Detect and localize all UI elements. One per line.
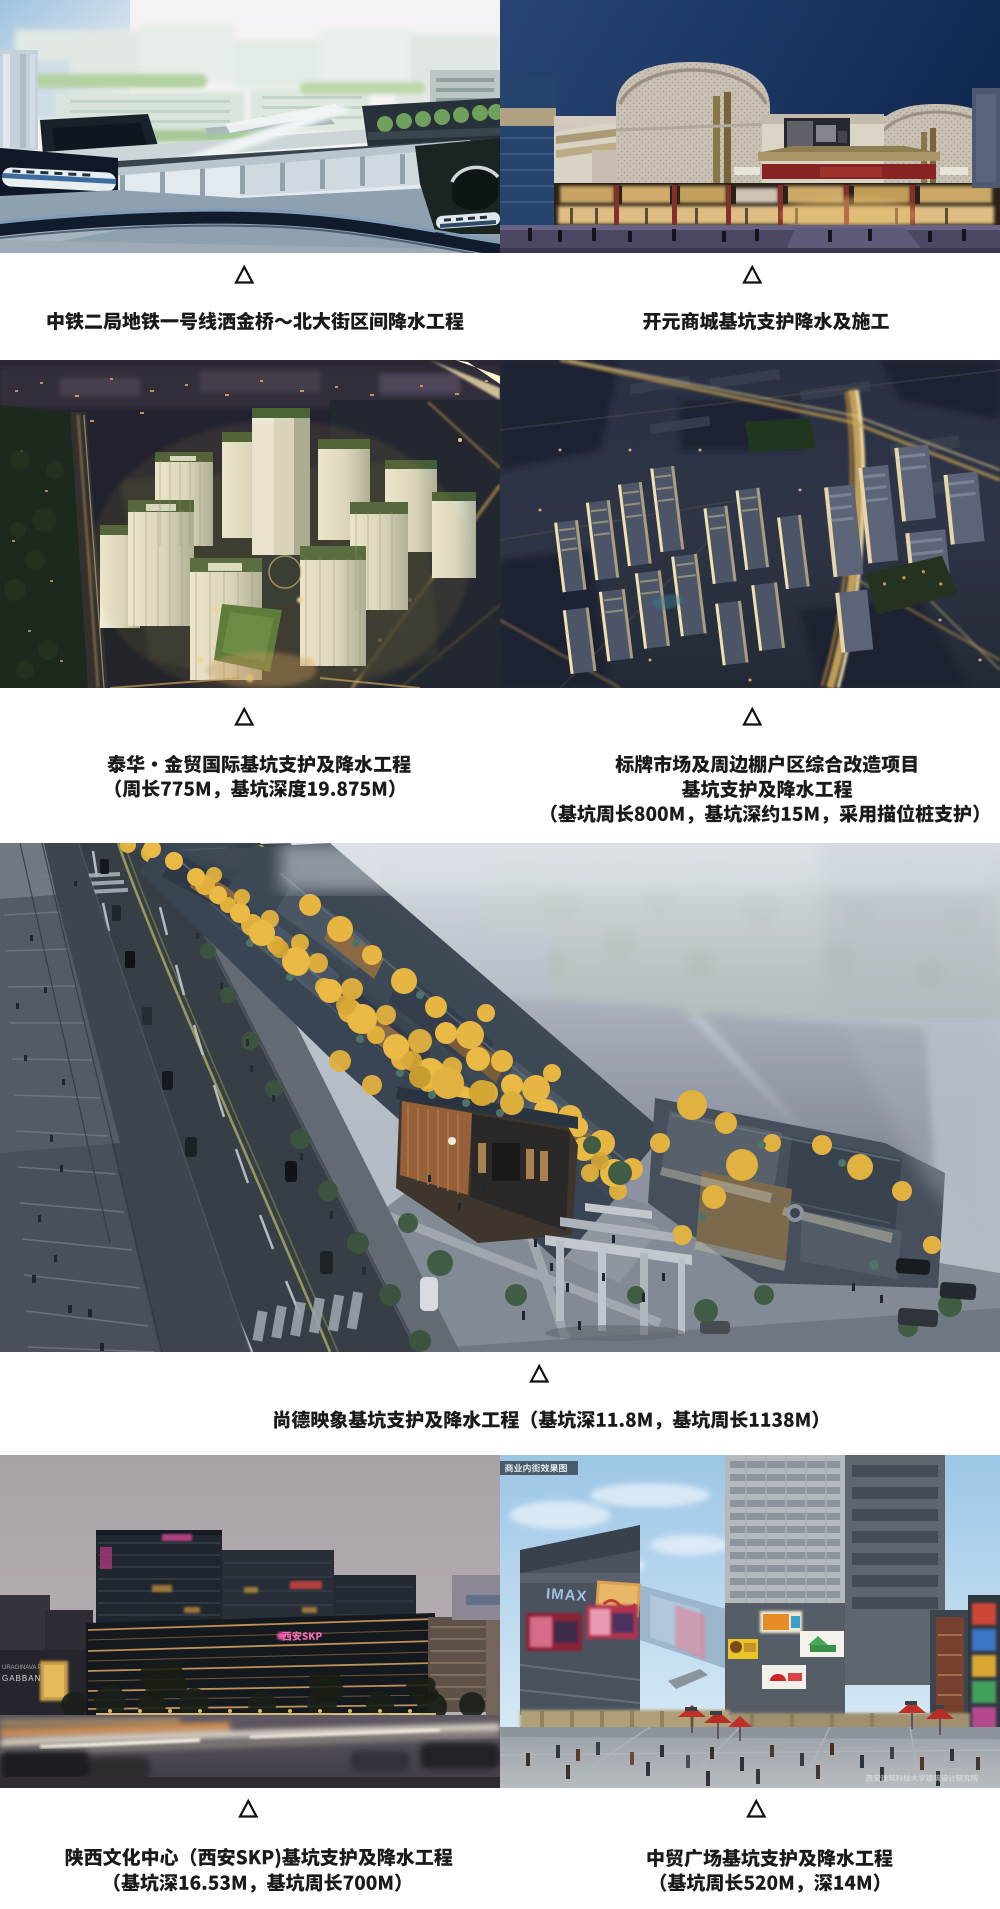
svg-text:IMAX: IMAX — [545, 1585, 588, 1605]
